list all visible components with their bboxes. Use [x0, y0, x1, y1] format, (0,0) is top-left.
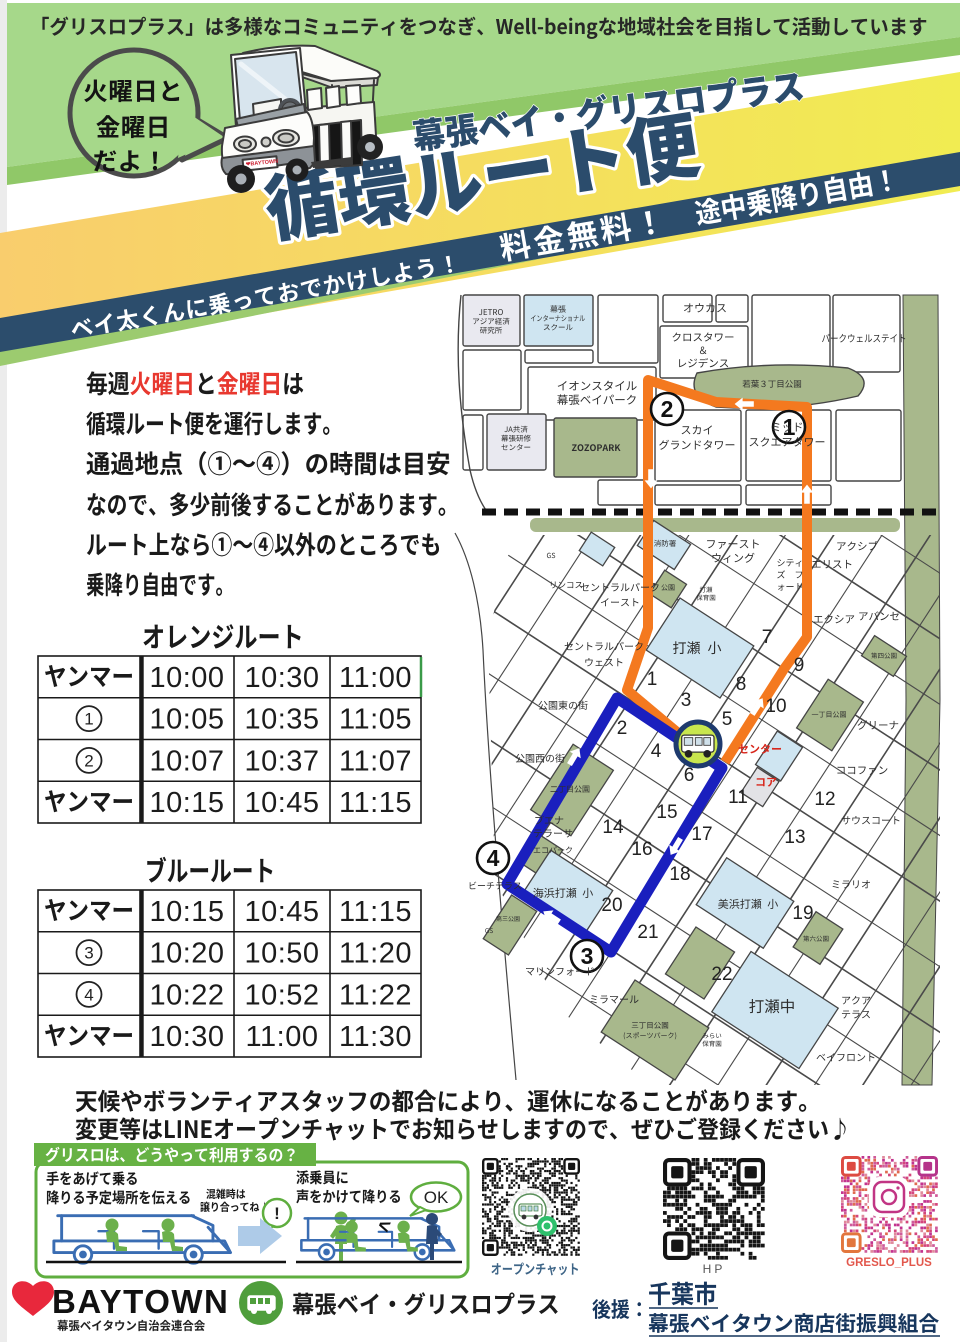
svg-text:10:05: 10:05: [149, 704, 224, 736]
svg-text:10:37: 10:37: [244, 745, 319, 777]
svg-text:7: 7: [762, 627, 773, 648]
svg-text:HP: HP: [703, 1262, 726, 1276]
svg-text:10:45: 10:45: [244, 787, 319, 819]
svg-text:10:30: 10:30: [244, 662, 319, 694]
svg-text:10:15: 10:15: [149, 896, 224, 928]
svg-text:8: 8: [736, 674, 747, 695]
svg-text:14: 14: [602, 817, 624, 838]
svg-text:11:15: 11:15: [339, 896, 412, 928]
svg-text:11:00: 11:00: [246, 1021, 319, 1053]
svg-text:2: 2: [661, 396, 674, 422]
svg-text:11:22: 11:22: [339, 979, 412, 1011]
svg-text:10:07: 10:07: [149, 745, 224, 777]
svg-text:12: 12: [814, 789, 835, 810]
svg-text:1: 1: [647, 669, 658, 690]
svg-text:17: 17: [691, 824, 712, 845]
svg-text:21: 21: [637, 922, 658, 943]
svg-text:4: 4: [487, 845, 500, 871]
svg-text:2: 2: [84, 751, 93, 770]
svg-text:5: 5: [722, 709, 733, 730]
svg-text:18: 18: [669, 864, 690, 885]
svg-text:3: 3: [84, 944, 93, 963]
svg-text:GRESLO_PLUS: GRESLO_PLUS: [846, 1257, 932, 1269]
svg-text:9: 9: [794, 655, 805, 676]
svg-text:10:30: 10:30: [149, 1021, 224, 1053]
svg-text:11:00: 11:00: [339, 662, 412, 694]
svg-text:BAYTOWN: BAYTOWN: [52, 1283, 229, 1320]
svg-text:10:52: 10:52: [244, 979, 319, 1011]
svg-text:10:50: 10:50: [244, 938, 319, 970]
svg-text:4: 4: [84, 985, 93, 1004]
svg-text:10:20: 10:20: [149, 938, 224, 970]
svg-text:10:00: 10:00: [149, 662, 224, 694]
svg-text:13: 13: [784, 827, 805, 848]
svg-text:11:30: 11:30: [339, 1021, 412, 1053]
svg-text:3: 3: [581, 943, 594, 969]
svg-text:!: !: [274, 1204, 280, 1223]
svg-text:1: 1: [84, 710, 93, 729]
svg-text:2: 2: [617, 718, 628, 739]
svg-text:19: 19: [792, 903, 813, 924]
svg-text:6: 6: [684, 765, 695, 786]
svg-text:11: 11: [728, 787, 748, 808]
svg-text:11:05: 11:05: [339, 704, 412, 736]
svg-text:OK: OK: [424, 1188, 449, 1207]
svg-text:10:45: 10:45: [244, 896, 319, 928]
svg-text:16: 16: [631, 839, 652, 860]
svg-text:4: 4: [651, 741, 662, 762]
svg-text:10: 10: [765, 696, 786, 717]
svg-text:20: 20: [601, 895, 622, 916]
svg-text:11:20: 11:20: [339, 938, 412, 970]
svg-text:11:07: 11:07: [339, 745, 412, 777]
svg-text:10:15: 10:15: [149, 787, 224, 819]
svg-text:10:35: 10:35: [244, 704, 319, 736]
svg-text:15: 15: [656, 802, 677, 823]
svg-text:22: 22: [711, 964, 732, 985]
svg-text:3: 3: [681, 690, 692, 711]
svg-text:11:15: 11:15: [339, 787, 412, 819]
svg-text:10:22: 10:22: [149, 979, 224, 1011]
